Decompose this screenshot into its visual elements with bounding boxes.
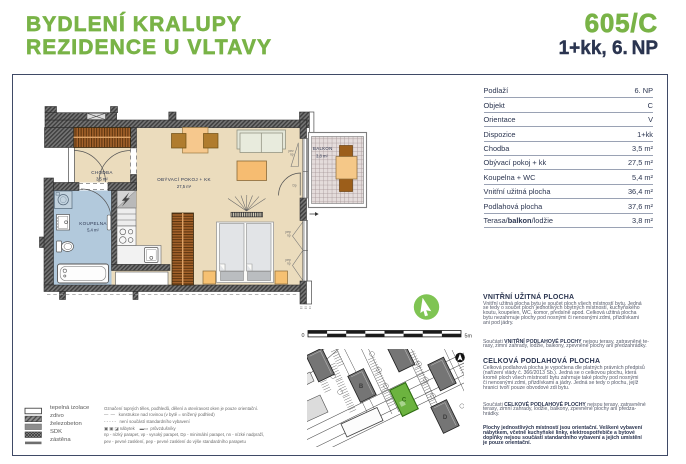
- svg-text:D: D: [443, 415, 448, 421]
- svg-text:3,5 m²: 3,5 m²: [96, 177, 108, 182]
- svg-text:C: C: [402, 398, 407, 404]
- svg-text:Dp: Dp: [293, 184, 297, 188]
- svg-text:OBÝVACÍ POKOJ + KK: OBÝVACÍ POKOJ + KK: [157, 176, 211, 182]
- svg-text:np: np: [287, 234, 291, 238]
- svg-text:np: np: [290, 153, 294, 157]
- svg-text:CHODBA: CHODBA: [91, 170, 113, 175]
- svg-text:KOUPELNA: KOUPELNA: [79, 221, 107, 226]
- svg-text:BALKON: BALKON: [313, 146, 333, 151]
- svg-text:np: np: [287, 262, 291, 266]
- svg-text:B: B: [359, 384, 364, 390]
- svg-text:5m: 5m: [465, 334, 473, 340]
- svg-text:3,8 m²: 3,8 m²: [316, 154, 328, 159]
- svg-text:27,5 m²: 27,5 m²: [177, 184, 192, 189]
- svg-text:5,4 m²: 5,4 m²: [87, 228, 99, 233]
- svg-text:0: 0: [302, 333, 305, 339]
